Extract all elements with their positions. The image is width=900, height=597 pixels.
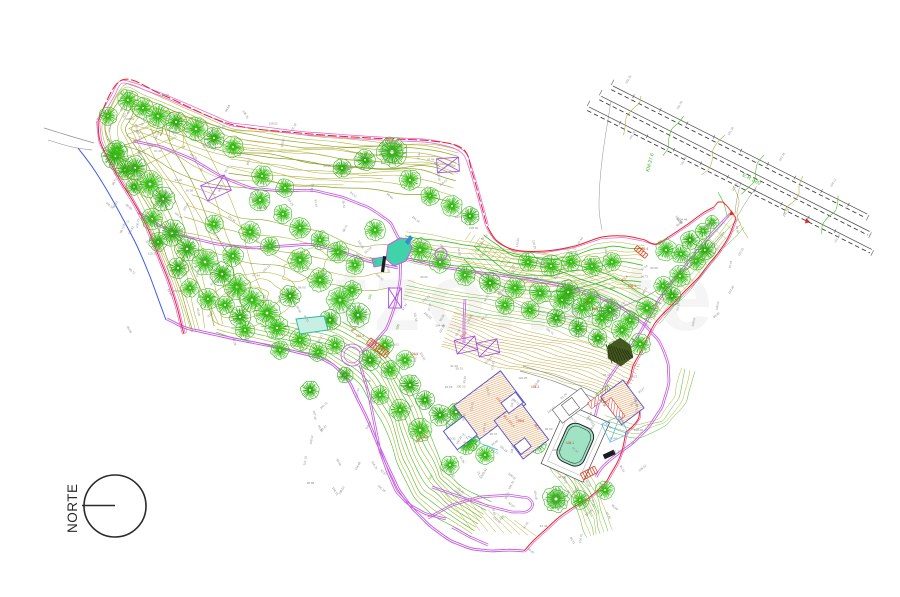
svg-text:98.6: 98.6 xyxy=(592,307,598,311)
svg-text:97.44: 97.44 xyxy=(603,373,611,377)
svg-text:98.72: 98.72 xyxy=(630,375,638,379)
svg-text:108.02: 108.02 xyxy=(425,406,435,410)
svg-text:91.26: 91.26 xyxy=(445,385,453,389)
svg-text:108.02: 108.02 xyxy=(390,342,400,346)
svg-text:99.60: 99.60 xyxy=(420,275,428,279)
svg-text:98.72: 98.72 xyxy=(641,275,649,279)
svg-text:104.1: 104.1 xyxy=(410,352,418,356)
svg-text:97.44: 97.44 xyxy=(252,273,260,277)
svg-text:96.58: 96.58 xyxy=(363,379,371,383)
svg-text:97.44: 97.44 xyxy=(427,158,435,162)
svg-text:106.75: 106.75 xyxy=(534,275,544,279)
svg-text:99.60: 99.60 xyxy=(298,286,306,290)
svg-text:99.60: 99.60 xyxy=(545,427,553,431)
svg-text:94.13: 94.13 xyxy=(126,166,134,170)
svg-text:101.4: 101.4 xyxy=(531,385,539,389)
svg-text:98.72: 98.72 xyxy=(490,432,498,436)
svg-text:104.1: 104.1 xyxy=(628,284,636,288)
svg-text:97.44: 97.44 xyxy=(389,141,397,145)
svg-text:101.4: 101.4 xyxy=(356,334,364,338)
svg-text:98.6: 98.6 xyxy=(518,419,524,423)
svg-text:100.32: 100.32 xyxy=(446,437,456,441)
svg-text:95.31: 95.31 xyxy=(456,367,464,371)
svg-text:NORTE: NORTE xyxy=(65,483,80,533)
svg-text:108.02: 108.02 xyxy=(269,121,279,125)
svg-text:99.60: 99.60 xyxy=(346,166,354,170)
svg-text:108.02: 108.02 xyxy=(125,117,135,121)
svg-text:100.32: 100.32 xyxy=(258,206,268,210)
svg-text:108.02: 108.02 xyxy=(634,428,644,432)
svg-text:100.32: 100.32 xyxy=(456,384,466,388)
svg-text:101.18: 101.18 xyxy=(216,125,226,129)
svg-text:108.02: 108.02 xyxy=(157,199,167,203)
svg-text:97.44: 97.44 xyxy=(540,524,548,528)
svg-text:100.32: 100.32 xyxy=(552,448,562,452)
svg-text:110.25: 110.25 xyxy=(518,376,527,380)
svg-text:103.91: 103.91 xyxy=(455,215,465,219)
svg-text:91.26: 91.26 xyxy=(613,449,621,453)
svg-text:100.32: 100.32 xyxy=(173,289,183,293)
svg-text:108.02: 108.02 xyxy=(469,226,479,230)
svg-text:104.48: 104.48 xyxy=(435,323,445,327)
svg-text:100.32: 100.32 xyxy=(160,93,170,97)
svg-text:96.58: 96.58 xyxy=(650,266,658,270)
svg-text:101.4: 101.4 xyxy=(640,247,648,251)
svg-text:110.25: 110.25 xyxy=(148,252,157,256)
svg-text:91.26: 91.26 xyxy=(200,120,208,124)
svg-text:96.58: 96.58 xyxy=(186,189,194,193)
svg-text:96.58: 96.58 xyxy=(307,481,315,485)
svg-text:100: 100 xyxy=(560,266,566,271)
svg-text:97.44: 97.44 xyxy=(609,437,617,441)
svg-text:97.44: 97.44 xyxy=(154,149,162,153)
svg-text:94.13: 94.13 xyxy=(323,164,331,168)
svg-text:104.1: 104.1 xyxy=(566,441,574,445)
svg-text:91.26: 91.26 xyxy=(175,178,183,182)
